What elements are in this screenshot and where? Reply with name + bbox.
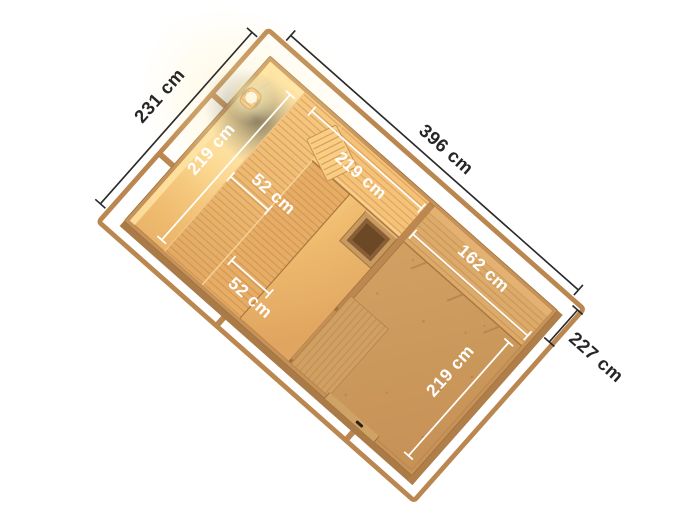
sauna-plan-svg: 231 cm 396 cm 227 cm 219 cm 219 cm: [0, 0, 700, 525]
dim-right-label: 227 cm: [565, 327, 628, 386]
product-diagram-canvas: 231 cm 396 cm 227 cm 219 cm 219 cm: [0, 0, 700, 525]
